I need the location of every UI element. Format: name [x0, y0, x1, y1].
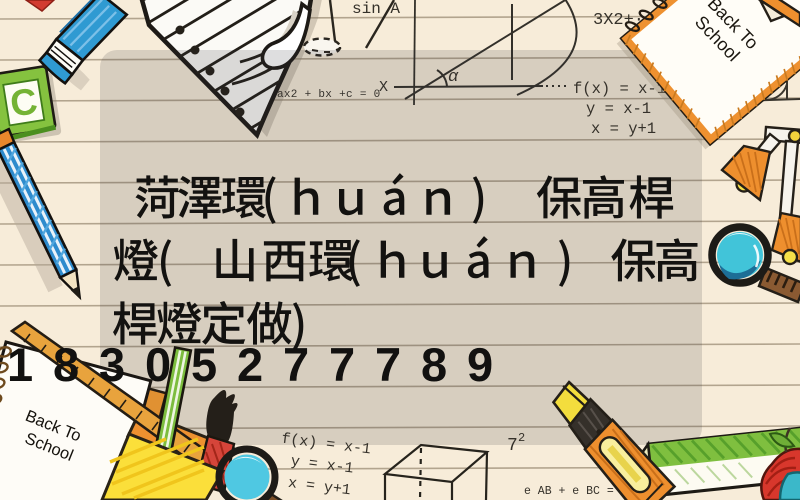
svg-text:y = x-1: y = x-1	[586, 100, 651, 118]
svg-text:2: 2	[518, 431, 525, 445]
svg-text:7: 7	[507, 436, 518, 456]
svg-text:x = y+1: x = y+1	[591, 120, 656, 138]
svg-text:sin A: sin A	[352, 0, 400, 18]
